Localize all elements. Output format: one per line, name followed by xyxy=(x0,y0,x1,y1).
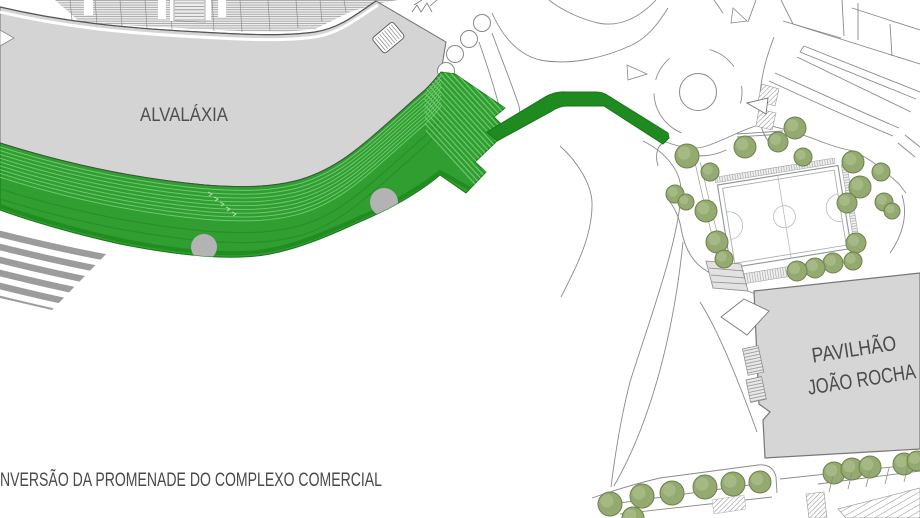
svg-text:NVERSÃO DA PROMENADE DO COMPLE: NVERSÃO DA PROMENADE DO COMPLEXO COMERCI… xyxy=(0,467,382,491)
svg-text:ALVALÁXIA: ALVALÁXIA xyxy=(140,105,228,126)
